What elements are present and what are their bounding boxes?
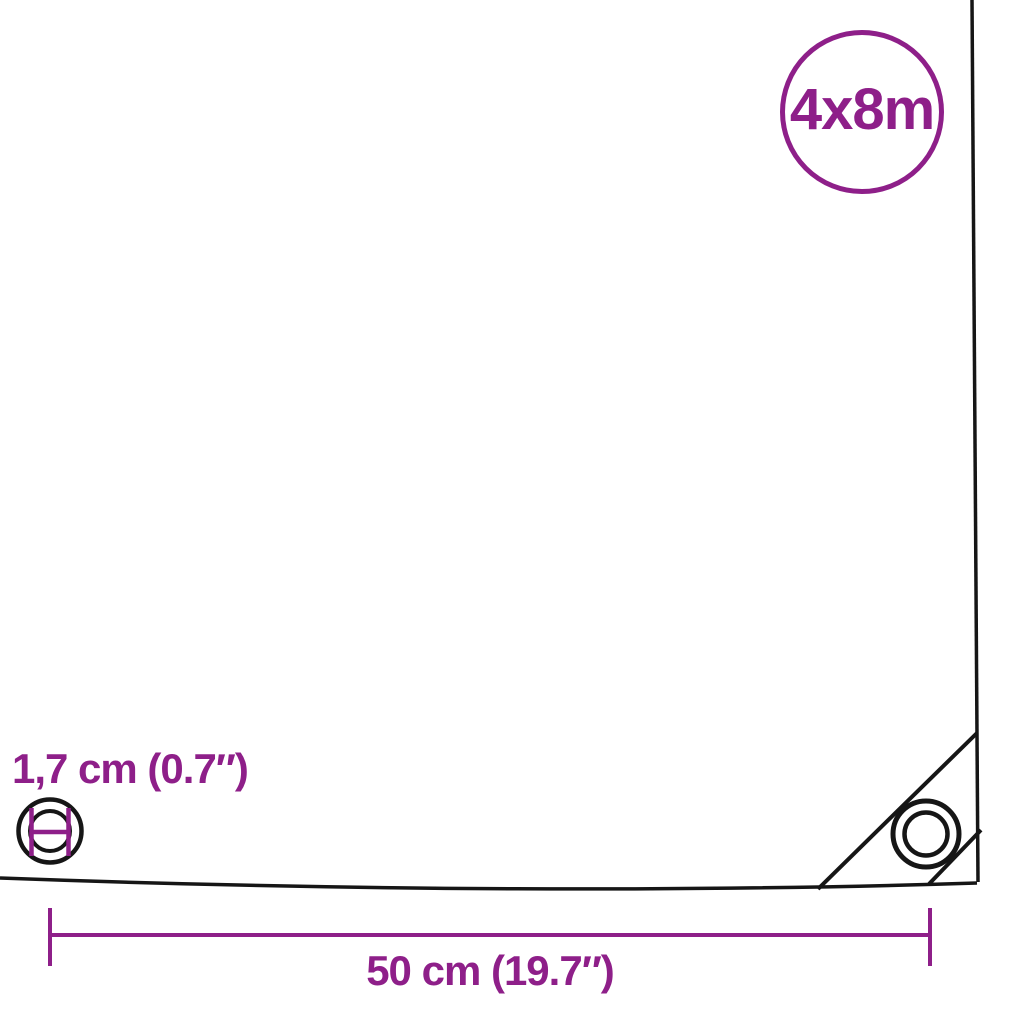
corner-grommet-inner-ring — [905, 813, 948, 856]
grommet-diameter-label: 1,7 cm (0.7″) — [12, 748, 248, 790]
grommet-diameter-icon — [19, 800, 82, 863]
size-badge-label: 4x8m — [790, 81, 934, 143]
corner-grommet-icon — [893, 801, 959, 867]
tarp-right-edge — [972, 0, 978, 882]
size-badge: 4x8m — [780, 30, 944, 194]
grommet-spacing-label: 50 cm (19.7″) — [50, 950, 930, 992]
tarp-bottom-edge — [0, 878, 977, 889]
tarpaulin-dimension-diagram: 4x8m 1,7 cm (0.7″) 50 cm (19.7″) — [0, 0, 1024, 1024]
corner-fold-line — [818, 733, 977, 889]
